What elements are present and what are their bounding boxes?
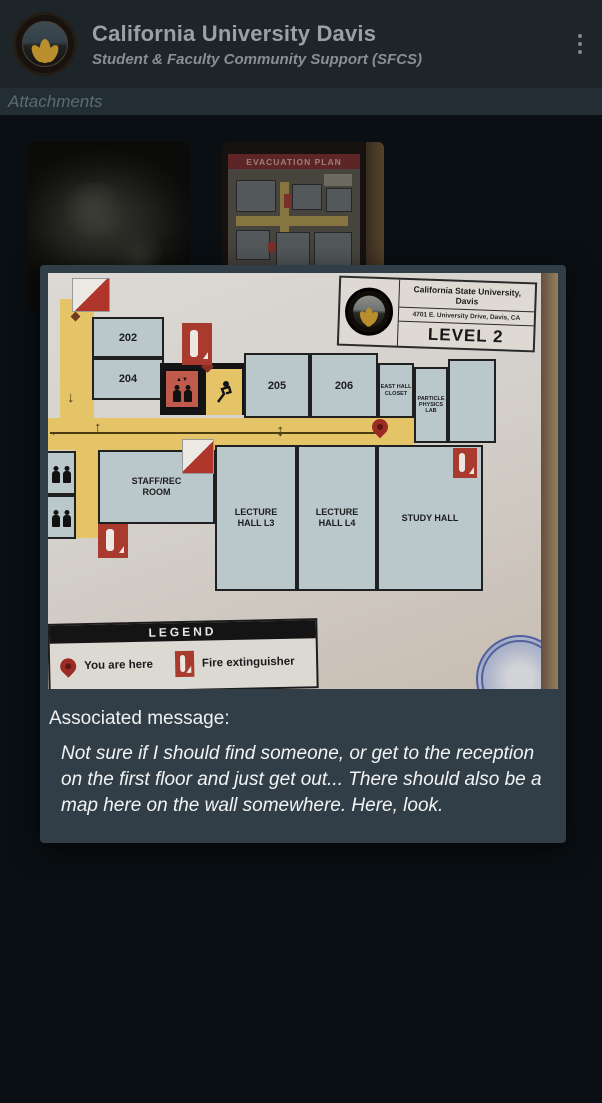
room-205: 205 bbox=[244, 353, 310, 418]
floor-plan-photo[interactable]: ← ↓ ↑ ↕ 202 204 ▲▼ 205 206 EAST HALL CLO… bbox=[48, 273, 558, 689]
room-east-hall-closet: EAST HALL CLOSET bbox=[378, 363, 414, 418]
legend-pin-icon bbox=[57, 655, 80, 678]
restroom bbox=[48, 495, 76, 539]
room-particle-physics-lab: PARTICLE PHYSICS LAB bbox=[414, 367, 448, 443]
kebab-menu-icon[interactable] bbox=[568, 26, 592, 62]
route-arrow-up: ↑ bbox=[94, 419, 102, 436]
attachments-label: Attachments bbox=[8, 92, 103, 112]
fire-extinguisher-sign-icon bbox=[182, 323, 212, 365]
route-arrow-updown: ↕ bbox=[276, 421, 285, 441]
stairs-icon bbox=[206, 369, 242, 415]
legend-fire-extinguisher: Fire extinguisher bbox=[202, 656, 295, 670]
plan-level: LEVEL 2 bbox=[398, 322, 534, 351]
plan-title-box: California State University, Davis 4701 … bbox=[337, 276, 537, 353]
room-lecture-hall-l3: LECTURE HALL L3 bbox=[215, 445, 297, 591]
associated-message-label: Associated message: bbox=[49, 708, 230, 730]
legend-title: LEGEND bbox=[148, 624, 216, 639]
app-header: California University Davis Student & Fa… bbox=[0, 0, 602, 88]
evacuation-plan-banner: EVACUATION PLAN bbox=[228, 154, 360, 169]
app-screen: California University Davis Student & Fa… bbox=[0, 0, 602, 1103]
attachments-section-bar: Attachments bbox=[0, 88, 602, 115]
elevator-icon: ▲▼ bbox=[164, 369, 200, 409]
orienteering-flag-icon bbox=[72, 278, 110, 312]
plan-legend: LEGEND You are here Fire extinguisher bbox=[48, 618, 319, 689]
page-title: California University Davis bbox=[92, 21, 422, 47]
associated-message-text: Not sure if I should find someone, or ge… bbox=[61, 741, 556, 820]
page-subtitle: Student & Faculty Community Support (SFC… bbox=[92, 51, 422, 68]
fire-extinguisher-icon bbox=[453, 448, 477, 478]
route-arrow-down: ↓ bbox=[67, 389, 75, 406]
university-logo-icon bbox=[13, 12, 77, 76]
legend-extinguisher-icon bbox=[175, 651, 195, 677]
orienteering-flag-icon bbox=[182, 439, 214, 474]
route-arrow-left: ← bbox=[49, 423, 64, 440]
header-text: California University Davis Student & Fa… bbox=[92, 21, 422, 68]
legend-you-are-here: You are here bbox=[84, 659, 153, 672]
restroom bbox=[48, 451, 76, 495]
plan-logo-icon bbox=[339, 278, 400, 346]
wall-edge bbox=[541, 273, 558, 689]
fire-extinguisher-icon bbox=[98, 524, 128, 558]
attachment-preview-card: ← ↓ ↑ ↕ 202 204 ▲▼ 205 206 EAST HALL CLO… bbox=[40, 265, 566, 843]
room-unlabeled bbox=[448, 359, 496, 443]
room-204: 204 bbox=[92, 358, 164, 400]
rock-texture bbox=[58, 182, 128, 237]
room-lecture-hall-l4: LECTURE HALL L4 bbox=[297, 445, 377, 591]
room-202: 202 bbox=[92, 317, 164, 358]
room-206: 206 bbox=[310, 353, 378, 418]
